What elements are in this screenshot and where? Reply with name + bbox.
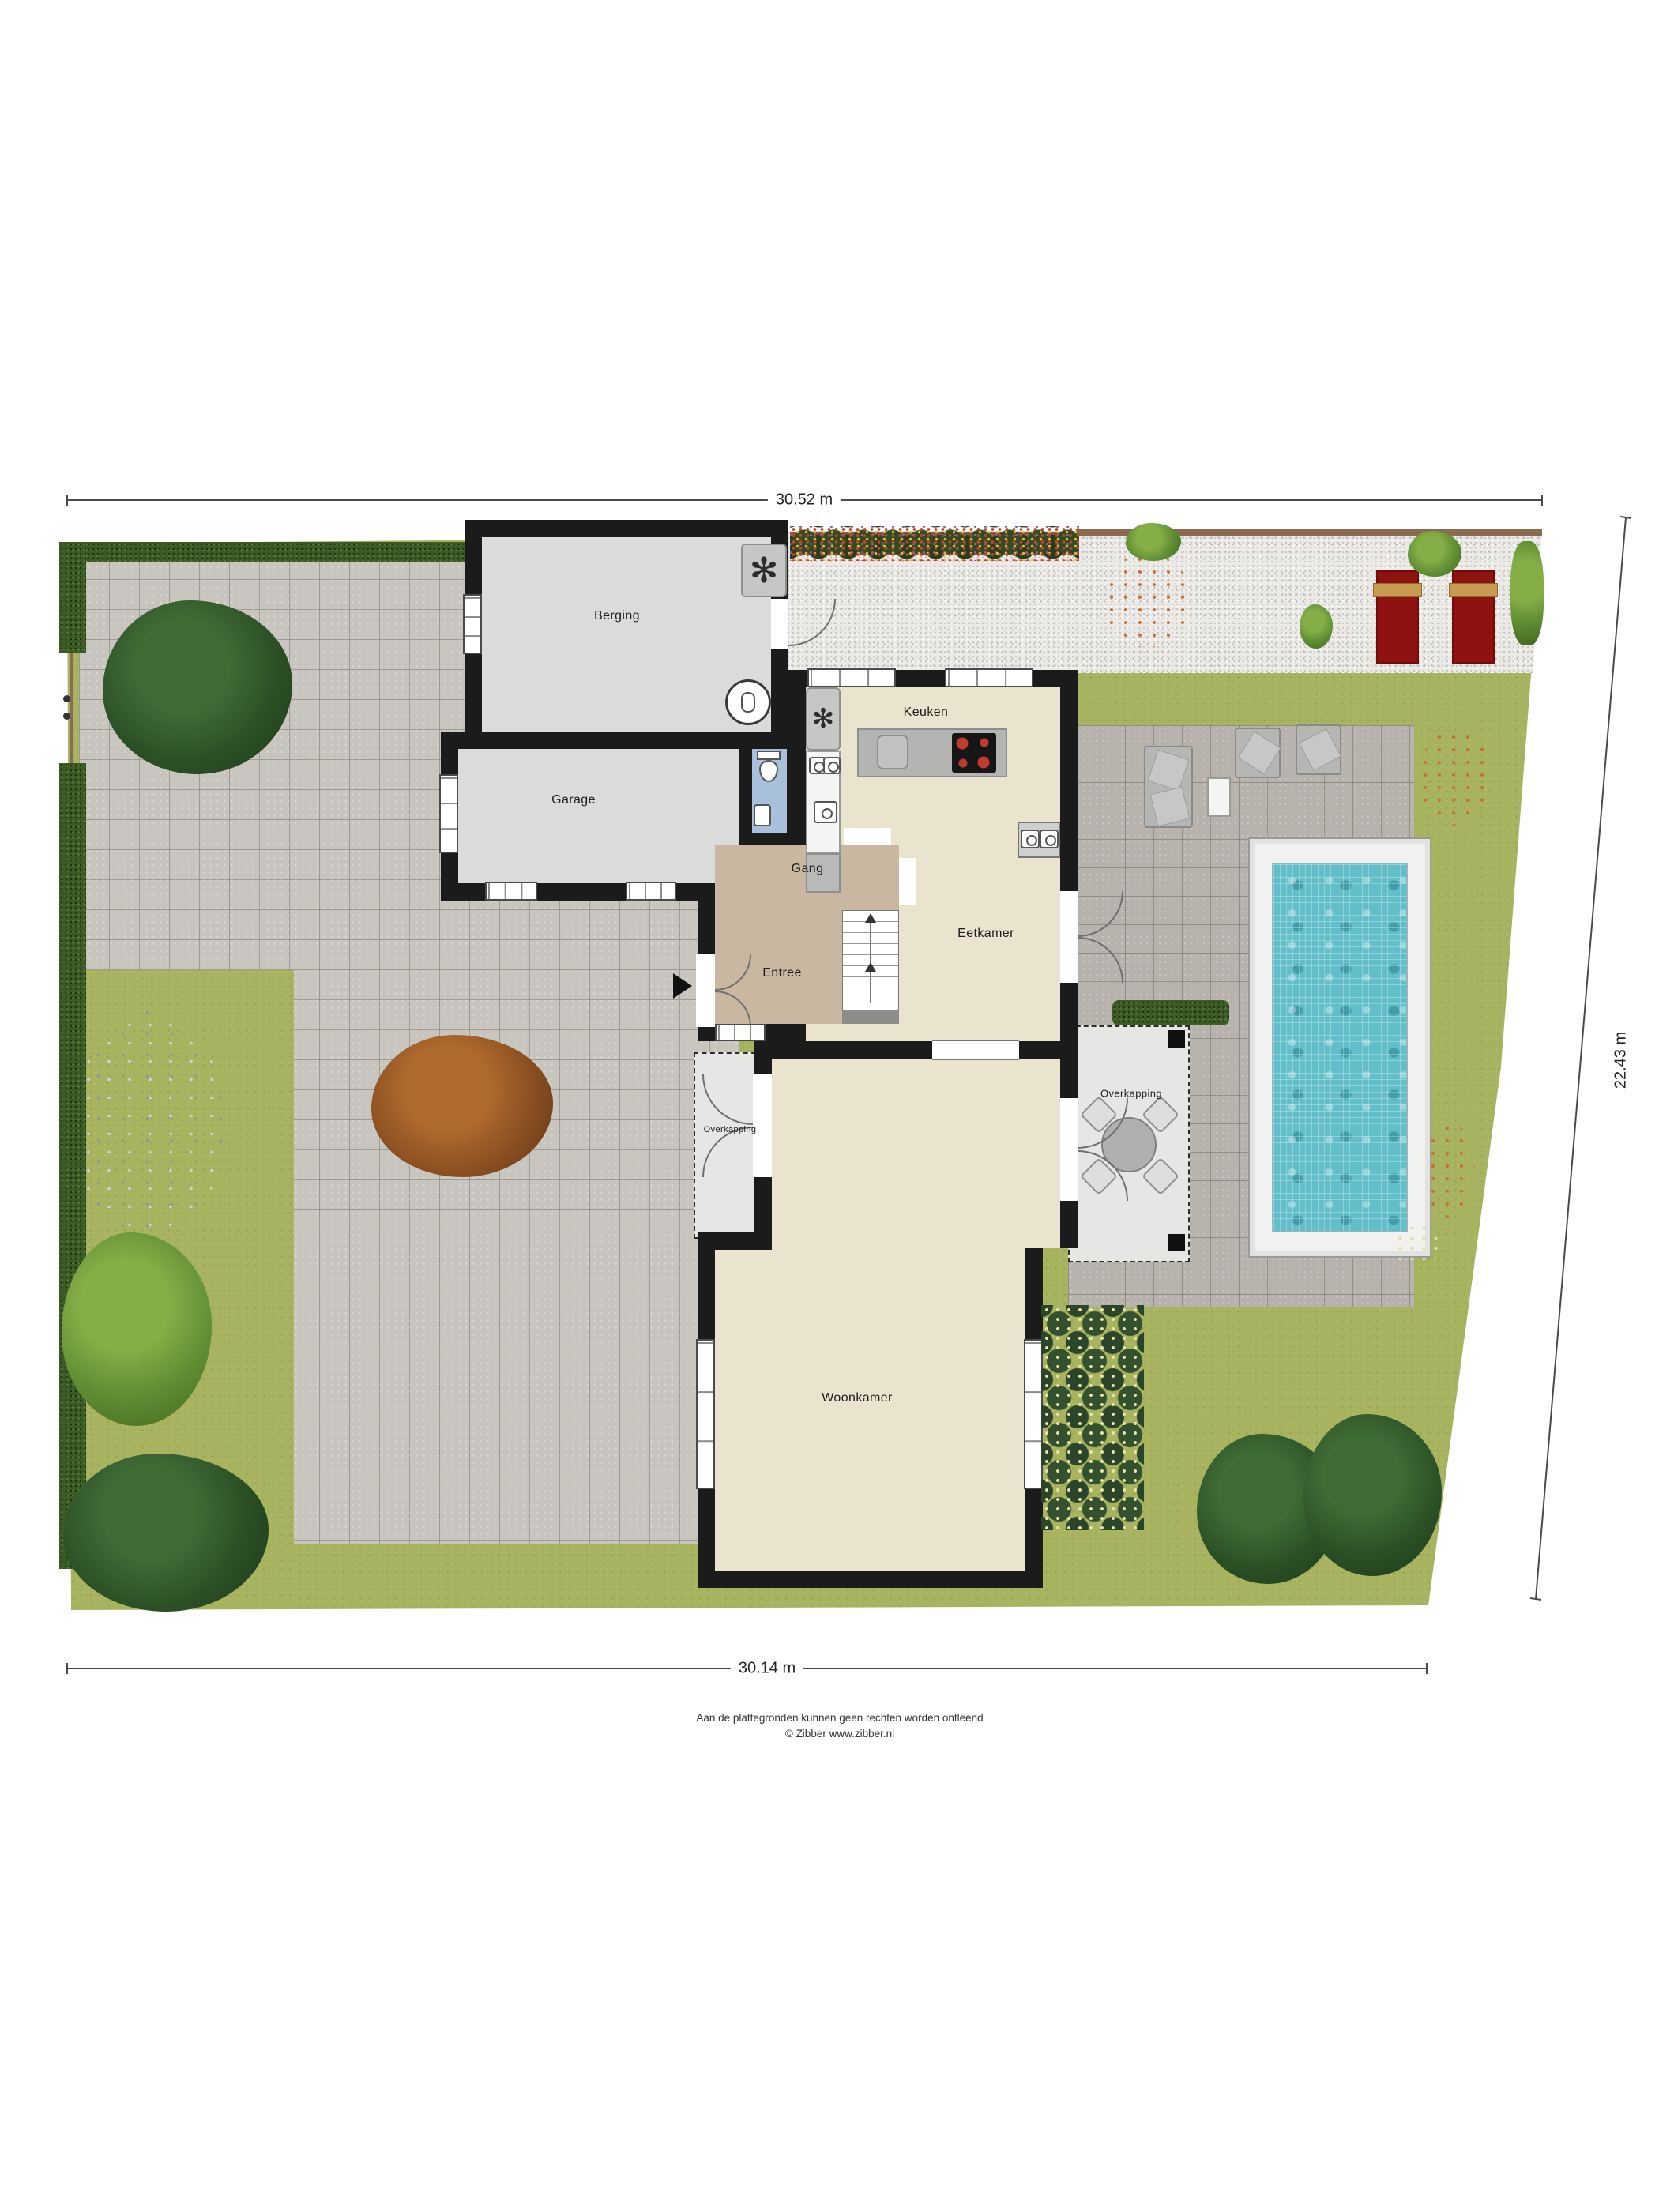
room-label-keuken: Keuken [904,705,949,720]
autumn-tree [371,1035,553,1177]
kitchen-sink [877,735,908,769]
tree [103,600,292,774]
window [696,1339,715,1489]
room-label-berging: Berging [594,609,640,623]
toilet-icon [757,750,781,760]
outdoor-armchair [1235,728,1281,778]
washer-icon [1021,829,1040,848]
window [626,882,676,901]
extractor-fan-icon: ✻ [806,687,841,750]
room-opening [899,858,916,905]
entrance-arrow-icon [673,973,692,999]
wc-sink-icon [754,804,771,826]
sun-lounger [1452,570,1495,664]
swimming-pool [1272,863,1408,1232]
boiler-inner [741,692,755,713]
orange-flower-bush [1104,553,1191,648]
terrace-post [1168,1234,1185,1251]
room-label-overkapping-left: Overkapping [704,1125,757,1134]
room-opening [844,828,891,845]
room-label-garage: Garage [551,793,596,807]
low-hedge-planter [1112,1000,1229,1025]
shrub [62,1232,212,1426]
terrace-post [1168,1030,1185,1048]
dimension-label-right: 22.43 m [1612,1024,1631,1097]
room-label-entree: Entree [762,966,802,980]
orange-flower-bush [1426,1122,1475,1221]
staircase-up-arrow [865,913,876,923]
outdoor-sofa [1144,746,1193,828]
shrub-cluster [1303,1414,1442,1576]
flowering-shrub [75,1011,225,1240]
room-label-eetkamer: Eetkamer [957,927,1014,941]
orange-flower-bush [1418,731,1493,826]
dimension-label-bottom: 30.14 m [731,1660,803,1678]
small-plant [1300,604,1333,649]
footer-disclaimer: Aan de plattegronden kunnen geen rechten… [696,1710,983,1726]
hedge-left-upper [59,542,86,653]
staircase-landing [842,1010,899,1024]
door-opening [771,599,788,649]
hedge-top [67,542,494,562]
window [463,594,482,654]
window [945,668,1033,687]
coffee-table [1207,777,1231,817]
dryer-icon [1040,829,1059,848]
garage-floor [458,749,739,883]
flowering-hedge-row [790,526,1079,561]
gate-hinge-dots [63,695,70,702]
front-door-opening [696,954,715,1027]
window [1024,1339,1043,1489]
room-label-overkapping-right: Overkapping [1100,1088,1162,1100]
room-label-woonkamer: Woonkamer [822,1391,893,1405]
window [485,882,537,901]
induction-hob-icon [952,733,996,773]
french-door-opening [1060,891,1078,983]
rose-bed [1041,1305,1144,1530]
floorplan-page: ✻ ✻ [0,0,1659,2212]
outdoor-armchair [1296,724,1341,775]
terrace-door-opening [1060,1098,1078,1201]
dishwasher-icon [823,757,841,774]
window [715,1024,766,1041]
round-bush [1408,531,1461,577]
window [439,774,458,853]
footer: Aan de plattegronden kunnen geen rechten… [696,1710,983,1742]
shrub-cluster [63,1454,269,1612]
dimension-label-top: 30.52 m [768,491,841,510]
sun-lounger [1376,570,1419,664]
tall-bush [1510,541,1544,645]
staircase-direction-line [870,915,871,1003]
ventilation-unit-icon: ✻ [741,544,787,597]
pool-corner-flowers [1394,1223,1440,1269]
window [807,668,896,687]
room-label-gang: Gang [792,862,824,876]
footer-copyright: © Zibber www.zibber.nl [696,1726,983,1742]
fence-left-gate [70,653,73,763]
staircase-up-arrow [865,962,876,972]
palm-plant [1126,523,1181,561]
microwave-icon [814,801,837,823]
room-opening [932,1040,1019,1060]
